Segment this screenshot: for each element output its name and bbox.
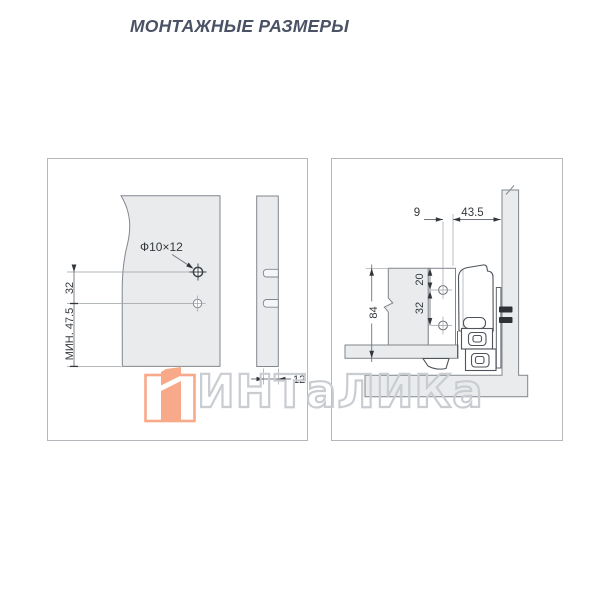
dim-back-height-text: 84 xyxy=(368,306,380,318)
dim-hole-spacing-text: 32 xyxy=(64,282,76,294)
mounting-screw-top xyxy=(499,307,513,313)
profile-mid-core xyxy=(473,336,482,343)
profile-bottom-hook xyxy=(423,359,449,370)
right-view: 9 43.5 20 32 84 xyxy=(331,158,563,441)
page: МОНТАЖНЫЕ РАЗМЕРЫ 32 МИН. 47.5 xyxy=(0,0,600,600)
dim-hole-spacing-right-text: 32 xyxy=(414,302,426,314)
dim-hole-to-front-text: 9 xyxy=(414,207,420,219)
page-title: МОНТАЖНЫЕ РАЗМЕРЫ xyxy=(130,16,349,37)
dim-min-height-text: МИН. 47.5 xyxy=(64,308,76,361)
profile-back-flange xyxy=(428,268,455,345)
profile-rolled-edge xyxy=(464,318,486,329)
dim-hole-depth-text: 12 xyxy=(293,374,305,386)
edge-hole-slot-bottom xyxy=(263,300,278,308)
hole-size-label: Ф10×12 xyxy=(140,240,183,254)
cabinet-panel-face xyxy=(121,196,220,367)
left-view-drawing: 32 МИН. 47.5 Ф10×12 xyxy=(47,158,308,441)
dim-hole-to-side-text: 43.5 xyxy=(461,207,483,219)
edge-hole-slot-top xyxy=(263,269,278,277)
dim-hole-depth-group: 12 xyxy=(251,369,305,387)
drawer-bottom-panel xyxy=(345,345,458,358)
right-view-drawing: 9 43.5 20 32 84 xyxy=(331,158,563,441)
left-view: 32 МИН. 47.5 Ф10×12 xyxy=(47,158,308,441)
panel-edge-view xyxy=(257,196,279,367)
profile-lower-core xyxy=(476,357,485,364)
slide-mounting-plate xyxy=(496,288,501,369)
mounting-screw-bottom xyxy=(499,317,513,323)
dim-top-to-hole-text: 20 xyxy=(414,273,426,285)
